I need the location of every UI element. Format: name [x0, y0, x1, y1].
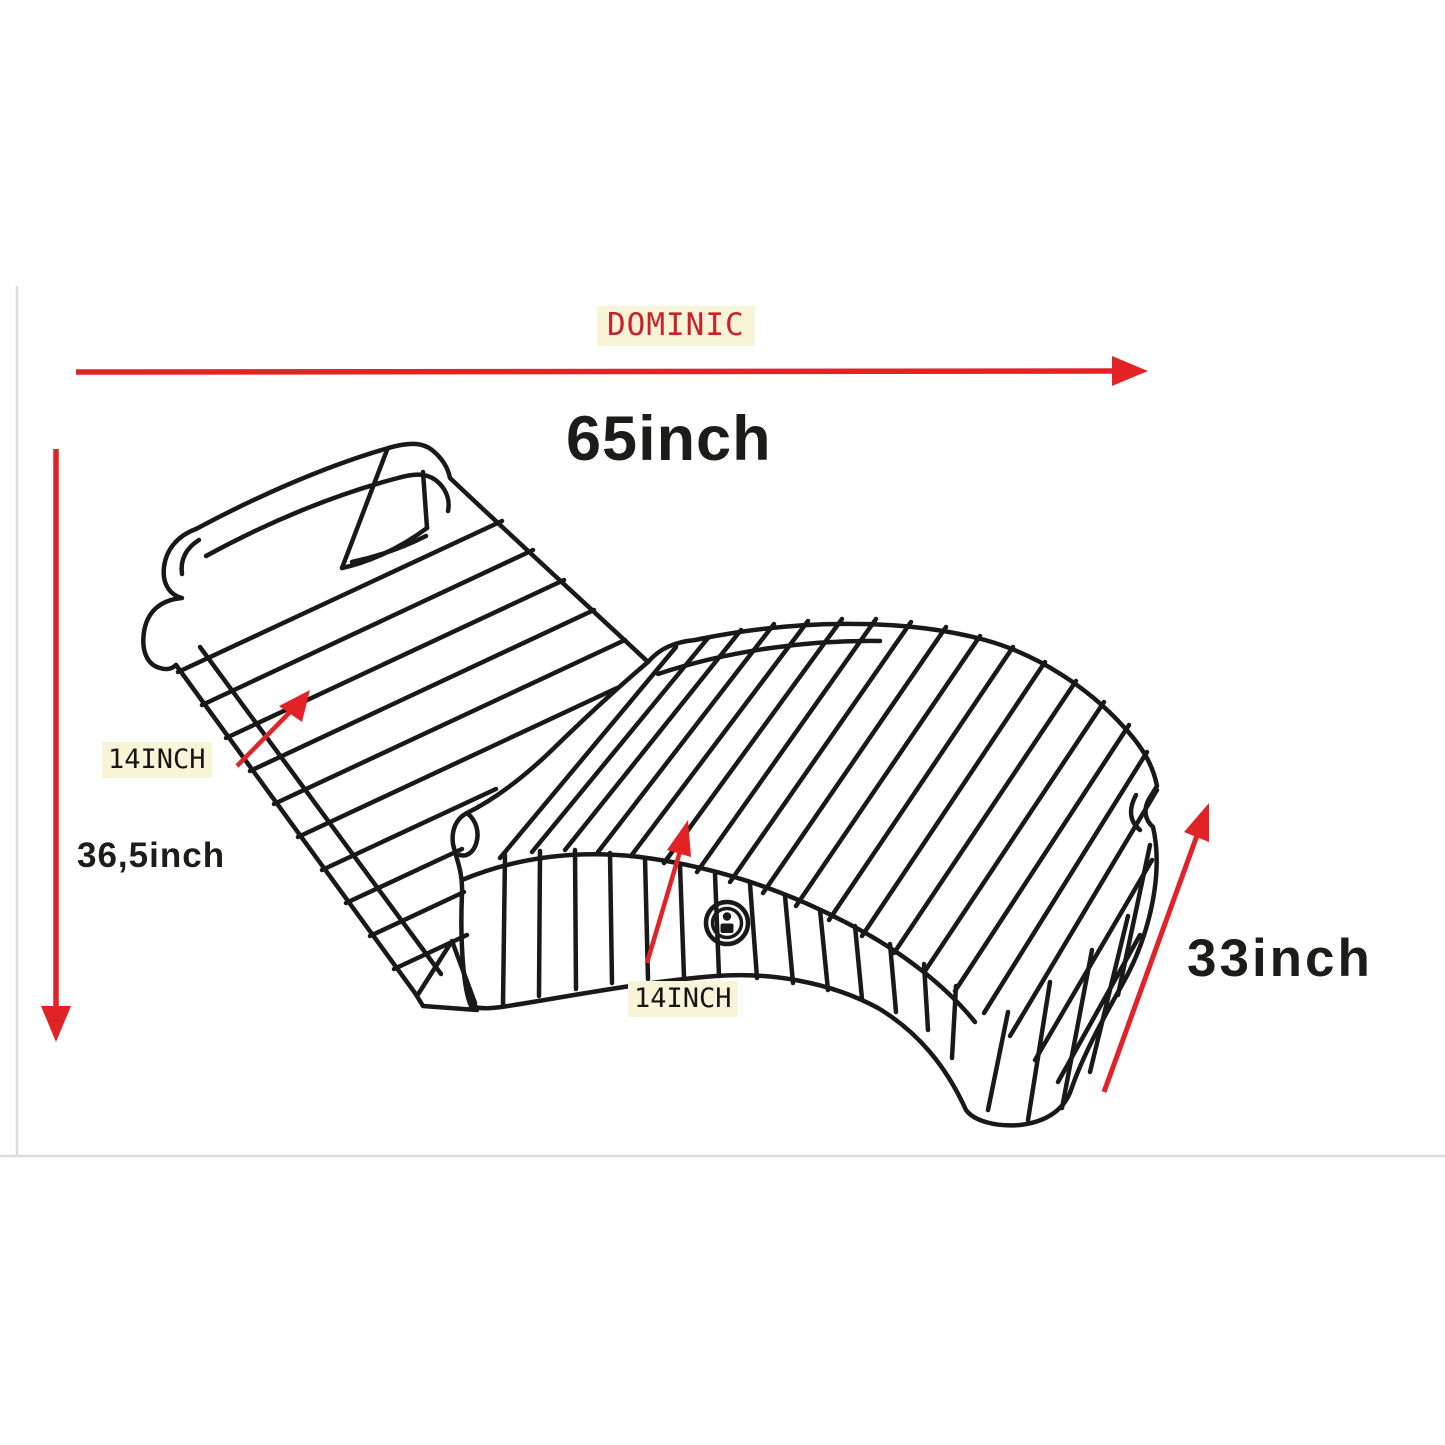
overall-length-label: 65inch [566, 408, 772, 471]
control-button-icon [706, 902, 748, 944]
product-dimension-diagram: DOMINIC 65inch 36,5inch 33inch 14INCH 14… [0, 0, 1445, 1445]
brand-label: DOMINIC [597, 306, 755, 346]
chaise-outline [143, 444, 1157, 1126]
height-arrow [41, 449, 71, 1042]
chaise-line-drawing [0, 0, 1445, 1445]
length-arrow [76, 356, 1148, 386]
seat-width-label: 14INCH [628, 981, 738, 1017]
backrest-width-label: 14INCH [102, 742, 212, 778]
overall-height-label: 36,5inch [77, 838, 225, 873]
side-depth-label: 33inch [1187, 932, 1373, 985]
